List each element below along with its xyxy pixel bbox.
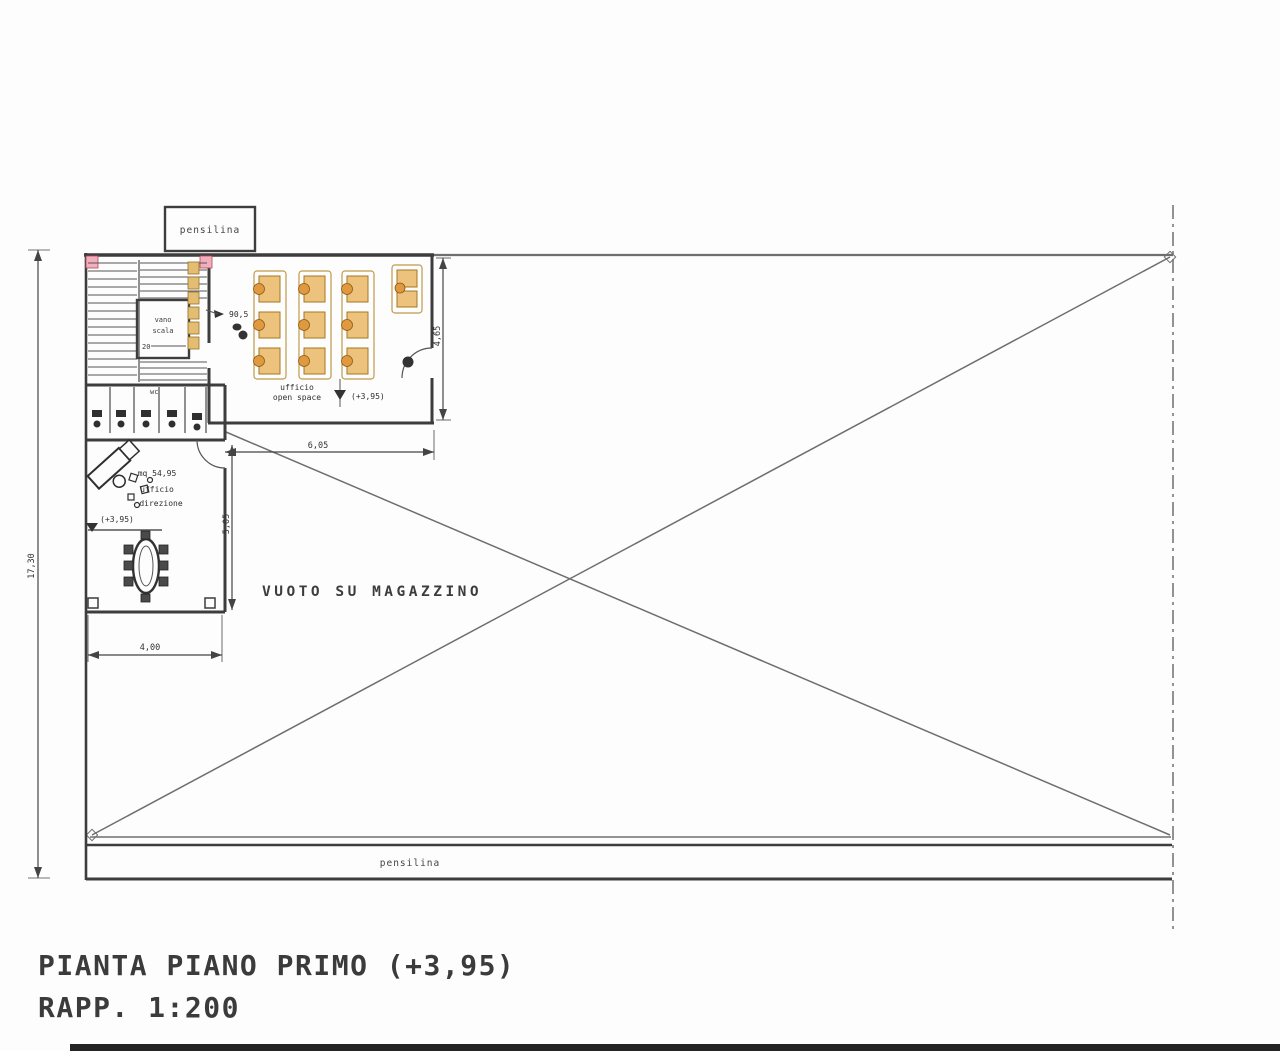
dimensions: 17,30 4,00 6,05 4,65 5,05 xyxy=(27,250,451,878)
dim-open-office-depth: 4,65 xyxy=(433,326,443,346)
stairwell-label-2: scala xyxy=(152,327,173,335)
open-office-area: 90,5 xyxy=(229,310,248,319)
desk-cluster-3 xyxy=(342,271,375,379)
open-office: 90,5 ufficio open space (+3,95) xyxy=(206,265,422,407)
cropped-bottom-bar xyxy=(70,1044,1280,1051)
void-label: VUOTO SU MAGAZZINO xyxy=(262,584,482,600)
open-office-name-1: ufficio xyxy=(280,383,314,392)
stairwell-steps-label: 20 xyxy=(142,343,150,351)
director-office-area: mq 54,95 xyxy=(138,469,177,478)
void-diagonal-2 xyxy=(226,432,1170,835)
wc-label: wc xyxy=(150,388,158,396)
dim-director-width: 4,00 xyxy=(140,643,160,653)
director-office: mq 54,95 ufficio direzione (+3,95) xyxy=(86,439,183,602)
void-frame xyxy=(86,205,1175,932)
desk-cluster-1 xyxy=(254,271,287,379)
dim-director-depth: 5,05 xyxy=(222,514,232,534)
wall-marker-pink-2 xyxy=(200,256,212,268)
canopy-bottom-label: pensilina xyxy=(380,858,440,869)
wc-block: wc xyxy=(92,387,206,433)
director-office-level: (+3,95) xyxy=(100,515,134,524)
wall-marker-pink-1 xyxy=(86,256,98,268)
canopy-top: pensilina xyxy=(165,207,255,251)
open-office-level: (+3,95) xyxy=(351,392,385,401)
dim-void-width: 6,05 xyxy=(308,441,328,451)
canopy-bottom: pensilina xyxy=(86,845,1172,879)
floorplan-drawing: pensilina pensilina xyxy=(0,0,1280,1051)
director-office-name-1: ufficio xyxy=(140,485,174,494)
floorplan-sheet: pensilina pensilina xyxy=(0,0,1280,1051)
open-office-name-2: open space xyxy=(273,393,321,402)
desk-cluster-2 xyxy=(299,271,332,379)
director-office-name-2: direzione xyxy=(139,499,183,508)
sheet-title: PIANTA PIANO PRIMO (+3,95) xyxy=(38,949,515,982)
stairwell-label-1: vano xyxy=(155,316,172,324)
stairwell: vano scala 20 xyxy=(88,260,207,382)
sheet-scale: RAPP. 1:200 xyxy=(38,991,240,1024)
canopy-top-label: pensilina xyxy=(180,225,240,236)
desk-cluster-4 xyxy=(392,265,422,313)
dim-building-depth: 17,30 xyxy=(27,553,37,579)
title-block: PIANTA PIANO PRIMO (+3,95) RAPP. 1:200 xyxy=(38,949,515,1024)
level-marker-open-office xyxy=(334,390,346,400)
direzione-door-arc xyxy=(197,440,225,468)
meeting-table xyxy=(124,531,168,602)
